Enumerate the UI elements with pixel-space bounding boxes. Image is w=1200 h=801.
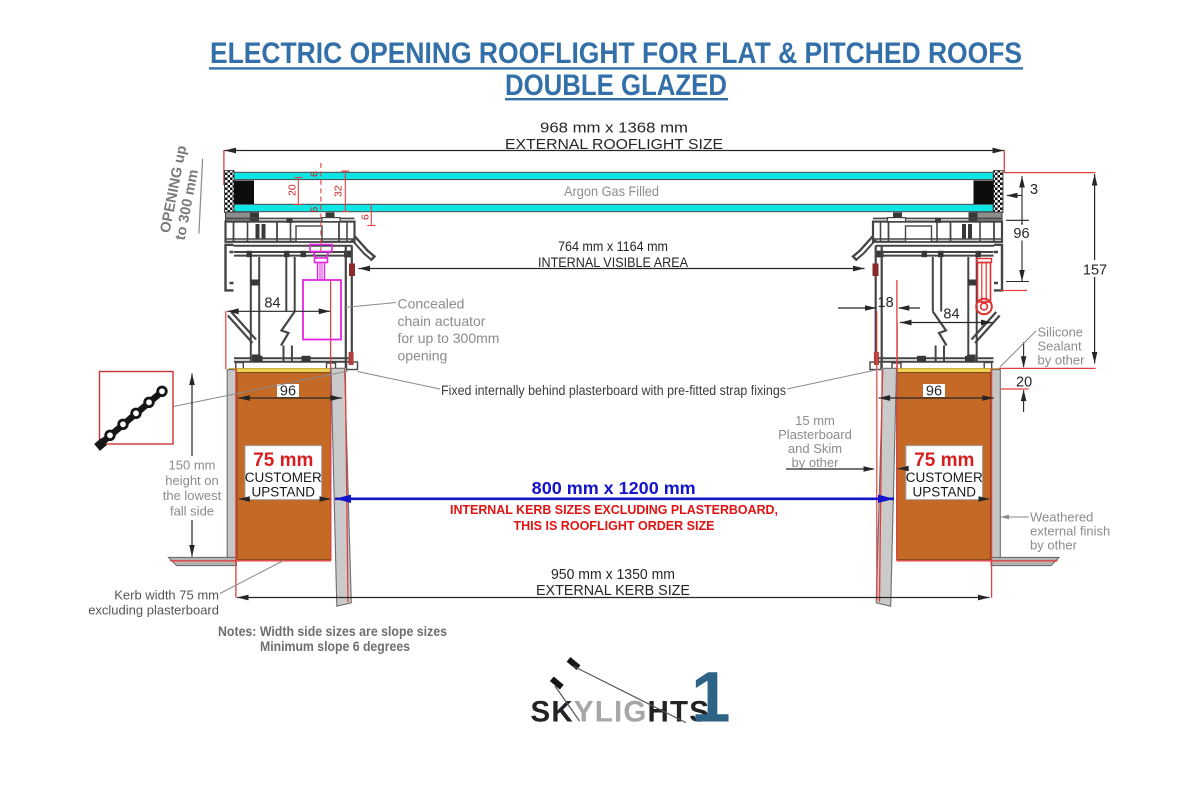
svg-text:764 mm x 1164 mm: 764 mm x 1164 mm: [558, 239, 668, 254]
svg-text:UPSTAND: UPSTAND: [913, 485, 977, 500]
svg-text:96: 96: [1013, 226, 1029, 242]
svg-text:opening: opening: [398, 347, 448, 363]
svg-text:CUSTOMER: CUSTOMER: [245, 470, 322, 485]
svg-text:968 mm x 1368 mm: 968 mm x 1368 mm: [540, 121, 688, 137]
svg-text:for up to 300mm: for up to 300mm: [398, 330, 500, 346]
svg-text:by other: by other: [1038, 353, 1086, 368]
svg-text:Plasterboard: Plasterboard: [778, 427, 852, 442]
svg-text:96: 96: [926, 384, 942, 400]
svg-text:75 mm: 75 mm: [253, 450, 313, 471]
svg-text:by other: by other: [1030, 538, 1078, 553]
svg-text:fall side: fall side: [170, 503, 214, 518]
svg-text:157: 157: [1083, 263, 1107, 279]
svg-text:1: 1: [691, 659, 731, 738]
svg-text:SKYLIGHTS: SKYLIGHTS: [531, 696, 711, 729]
svg-text:Sealant: Sealant: [1038, 339, 1082, 354]
svg-text:height on: height on: [165, 473, 219, 488]
svg-text:ELECTRIC OPENING ROOFLIGHT FOR: ELECTRIC OPENING ROOFLIGHT FOR FLAT & PI…: [210, 37, 1022, 70]
svg-text:THIS IS ROOFLIGHT ORDER SIZE: THIS IS ROOFLIGHT ORDER SIZE: [514, 518, 715, 533]
svg-text:INTERNAL KERB SIZES EXCLUDING: INTERNAL KERB SIZES EXCLUDING PLASTERBOA…: [450, 502, 778, 517]
svg-text:Silicone: Silicone: [1038, 325, 1084, 340]
svg-text:950 mm x 1350 mm: 950 mm x 1350 mm: [551, 567, 675, 583]
svg-text:20: 20: [287, 184, 299, 196]
svg-text:15 mm: 15 mm: [795, 413, 835, 428]
svg-text:84: 84: [264, 296, 280, 312]
svg-text:chain actuator: chain actuator: [398, 313, 486, 329]
svg-text:6: 6: [309, 207, 321, 213]
svg-text:18: 18: [878, 295, 894, 311]
svg-text:Kerb width 75 mm: Kerb width 75 mm: [114, 588, 219, 603]
svg-text:Concealed: Concealed: [398, 296, 465, 312]
svg-text:800 mm x 1200 mm: 800 mm x 1200 mm: [532, 478, 696, 498]
svg-text:CUSTOMER: CUSTOMER: [906, 470, 983, 485]
svg-text:32: 32: [333, 185, 345, 197]
svg-text:Argon Gas Filled: Argon Gas Filled: [564, 183, 659, 199]
svg-text:Weathered: Weathered: [1030, 510, 1093, 525]
svg-text:20: 20: [1016, 375, 1032, 391]
svg-text:Notes: Width side sizes are sl: Notes: Width side sizes are slope sizes: [218, 624, 447, 639]
svg-text:external finish: external finish: [1030, 524, 1110, 539]
svg-text:6: 6: [309, 171, 321, 177]
svg-text:INTERNAL VISIBLE AREA: INTERNAL VISIBLE AREA: [538, 255, 688, 270]
svg-text:DOUBLE GLAZED: DOUBLE GLAZED: [505, 69, 727, 102]
svg-text:Minimum slope 6 degrees: Minimum slope 6 degrees: [260, 639, 410, 654]
svg-text:and Skim: and Skim: [788, 441, 842, 456]
svg-text:3: 3: [1030, 182, 1038, 198]
svg-text:75 mm: 75 mm: [914, 450, 974, 471]
svg-text:84: 84: [943, 307, 959, 323]
svg-text:Fixed internally behind plaste: Fixed internally behind plasterboard wit…: [441, 383, 786, 398]
svg-text:96: 96: [280, 384, 296, 400]
svg-text:excluding plasterboard: excluding plasterboard: [88, 603, 219, 618]
svg-text:the lowest: the lowest: [163, 488, 222, 503]
svg-text:EXTERNAL KERB SIZE: EXTERNAL KERB SIZE: [536, 583, 690, 599]
svg-text:6: 6: [360, 214, 372, 220]
svg-text:150 mm: 150 mm: [169, 458, 216, 473]
svg-text:UPSTAND: UPSTAND: [252, 485, 316, 500]
svg-text:by other: by other: [792, 455, 840, 470]
